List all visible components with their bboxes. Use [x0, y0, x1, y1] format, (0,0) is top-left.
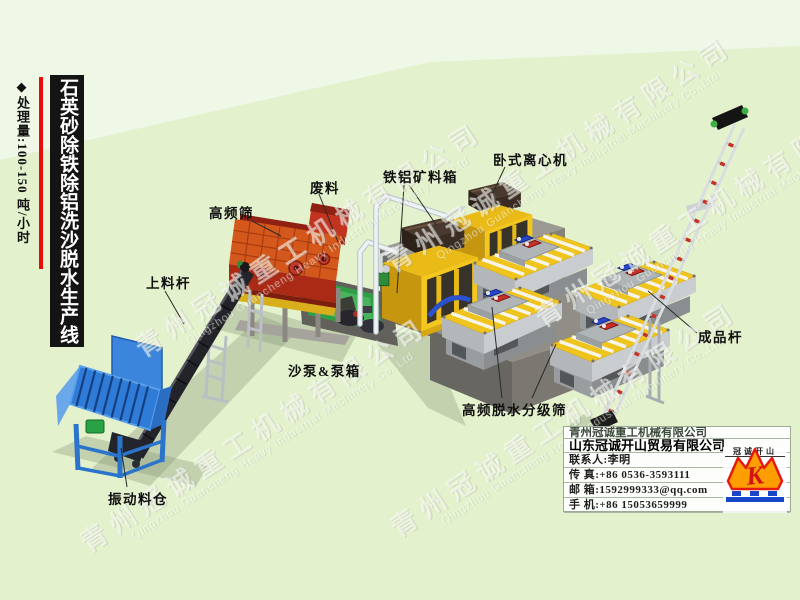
poster-canvas: 青州冠诚重工机械有限公司 Qingzhou Guancheng Heavy In…: [0, 0, 800, 600]
capacity-note: ◆处理量:100-150 吨/小时: [13, 80, 32, 270]
label-horizontal-centrifuge: 卧式离心机: [493, 149, 568, 169]
contact-card: 青州冠诚重工机械有限公司 山东冠诚开山贸易有限公司 联系人:李明 传 真:+86…: [563, 426, 791, 512]
page-title: 石英砂除铁除铝洗沙脱水生产线: [50, 78, 84, 344]
title-bar: 石英砂除铁除铝洗沙脱水生产线: [50, 75, 84, 347]
label-feed-conveyor: 上料杆: [146, 272, 191, 292]
red-accent-line: [39, 77, 43, 269]
label-sand-pump-box: 沙泵&泵箱: [288, 360, 361, 380]
label-finished-product-conveyor: 成品杆: [698, 326, 743, 346]
label-dewatering-screen: 高频脱水分级筛: [462, 399, 567, 419]
label-waste: 废料: [310, 177, 340, 197]
label-high-frequency-screen: 高频筛: [209, 202, 254, 222]
company-logo: K 冠诚开山: [723, 447, 787, 513]
company-name-1: 青州冠诚重工机械有限公司: [564, 427, 790, 439]
label-vibrating-hopper: 振动料仓: [108, 488, 168, 508]
label-iron-aluminum-ore-box: 铁铝矿料箱: [383, 166, 458, 186]
crown-logo-icon: K: [723, 447, 787, 503]
